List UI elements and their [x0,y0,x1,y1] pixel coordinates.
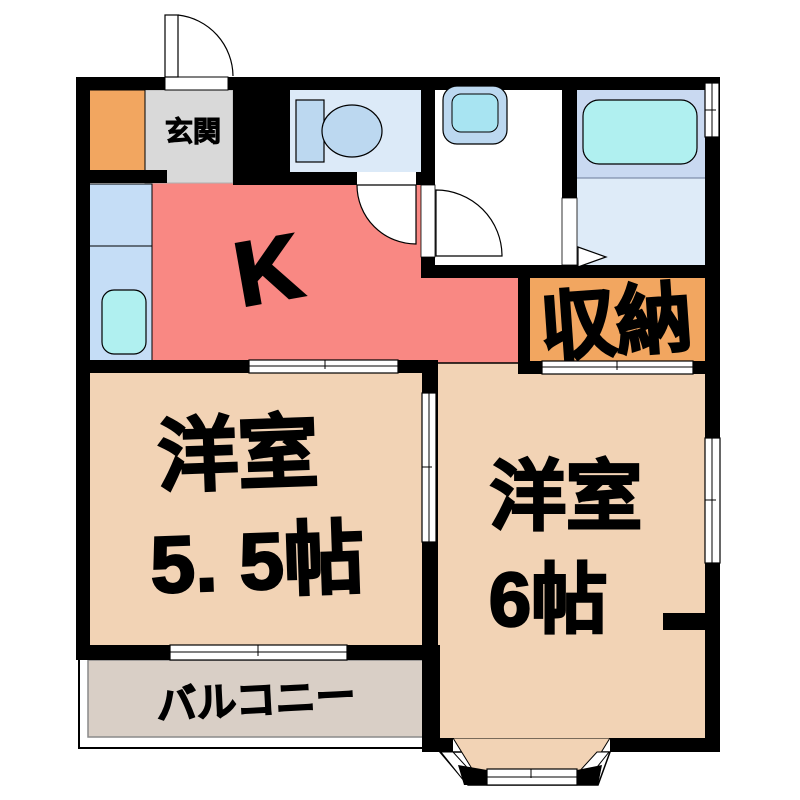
entrance-door [165,15,233,90]
kitchen-sink-icon [102,290,146,354]
wall-room2-bottom-left [422,738,453,752]
hinged-door-arc [178,15,233,76]
toilet-icon [296,100,382,162]
wall-room2-bottom-right [610,738,720,752]
entrance-label: 玄関 [165,115,221,147]
room2-size-label: 6帖 [489,558,607,643]
wall-storage-left [518,278,530,374]
room1-window [170,645,347,660]
wall-storage-stub-left [530,361,542,374]
room2-name-label: 洋室 [490,455,642,540]
entrance-door-threshold [165,77,228,90]
room1-size-label: 5. 5帖 [149,513,365,609]
floor-plan: 玄関 K 収納 洋室 5. 5帖 洋室 6帖 バルコニー [0,0,800,800]
room-divider-sliding-door [422,393,436,542]
toilet-bowl [322,105,382,157]
floor-plan-page: 玄関 K 収納 洋室 5. 5帖 洋室 6帖 バルコニー [0,0,800,800]
wall-balcony-right [422,645,440,752]
wall-kitchen-bottom-right [398,360,438,373]
bathroom-floor-lower [577,178,705,265]
storage-label: 収納 [537,276,695,371]
bathtub-icon [583,100,697,164]
wall-under-cabinet [88,170,167,183]
kitchen-room1-sliding-door [249,360,398,373]
wall-kitchen-bottom-left [90,360,249,373]
wall-right [705,77,720,752]
wall-pillar-right [663,613,720,630]
washbasin-icon [443,86,507,144]
bay-window [440,738,610,785]
wall-left [76,77,90,660]
room2-window [705,438,720,563]
room1-name-label: 洋室 [157,407,320,502]
wall-entrance-shaft [233,77,290,185]
bathroom-window [705,83,719,137]
toilet-door-opening [357,172,416,185]
washroom-door-opening [421,185,435,257]
wall-storage-stub-right [693,361,705,374]
toilet-tank [296,100,324,162]
entrance-door-leaf [165,15,178,77]
shoe-cabinet [88,90,145,172]
kitchen-counter [87,184,152,364]
room2-floor [435,363,705,738]
bathroom-door-opening [562,198,577,265]
washbasin-bowl [452,94,498,132]
